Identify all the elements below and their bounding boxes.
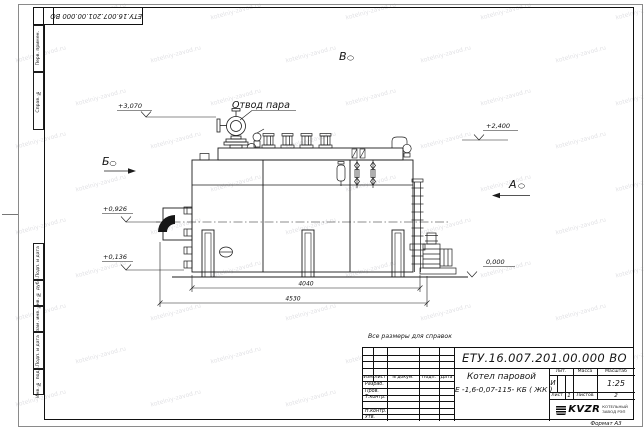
- sheet-label: Лист: [549, 392, 565, 399]
- dimension-inner: 4040: [298, 281, 313, 288]
- scale-value: 1:25: [597, 375, 635, 393]
- drawing-sheet: kotelniy-zavod.rukotelniy-zavod.rukoteln…: [0, 0, 644, 430]
- product-name: Котел паровой: [456, 371, 547, 384]
- elevation-mark-0926: +0,926: [103, 205, 127, 213]
- kvzr-logo: KVZR: [568, 404, 600, 415]
- boiler-body: [156, 109, 468, 278]
- format-label: Формат А3: [578, 421, 634, 427]
- view-label-v: В: [339, 50, 347, 63]
- feed-pump: [420, 233, 456, 274]
- header-fittings: [352, 149, 365, 158]
- col-podp: Подп.: [419, 375, 439, 382]
- row-nkontr: Н.контр.: [363, 408, 389, 415]
- product-model: Е -1,6-0,07-115- КБ ( ЖК ): [455, 384, 548, 395]
- margin-field-label: Перв. примен.: [36, 31, 41, 66]
- margin-field-perv-primen: Перв. примен.: [33, 25, 44, 72]
- sheets-label: Листов: [573, 392, 597, 399]
- margin-field-podp-data-1: Подп. и дата: [33, 243, 44, 280]
- col-izm: Изм: [363, 375, 373, 382]
- sheet-value: 1: [565, 392, 573, 399]
- vent-pipe: [392, 137, 411, 157]
- elevation-mark-3070: +3,070: [118, 102, 142, 110]
- corner-doc-number: ЕТУ.16.007.201.00.000 ВО: [54, 8, 142, 24]
- company-name: КОТЕЛЬНЫЙ ЗАВОД РЭП: [602, 405, 628, 414]
- margin-field-label: Взам. инв. №: [36, 303, 41, 334]
- view-label-a: А: [508, 178, 517, 191]
- kvzr-spring-icon: [556, 405, 566, 415]
- massa-label: Масса: [573, 368, 597, 375]
- manhole-covers: [262, 134, 332, 149]
- reference-note: Все размеры для справок: [350, 333, 470, 340]
- water-level-gauges: [337, 160, 376, 188]
- steam-valve: [217, 109, 248, 149]
- lit-value: И: [549, 375, 557, 393]
- elevation-mark-2400: +2,400: [486, 122, 510, 130]
- margin-field-sprav-no: Справ. №: [33, 72, 44, 130]
- damper-sector: [158, 215, 175, 232]
- boiler-shell: [192, 160, 413, 272]
- view-arrow-b: [128, 168, 136, 174]
- row-prov: Пров.: [363, 388, 389, 395]
- margin-field-label: Подп. и дата: [36, 246, 41, 277]
- row-razrab: Разраб.: [363, 381, 389, 388]
- elevation-symbols: [102, 111, 518, 278]
- view-arrow-a: [492, 193, 500, 199]
- steam-outlet-label: Отвод пара: [232, 100, 290, 111]
- title-block: Изм Лист N докум. Подп. Дата Разраб. Про…: [362, 347, 634, 420]
- view-label-b: Б: [102, 155, 110, 168]
- company-name-line2: ЗАВОД РЭП: [602, 410, 628, 414]
- leader-line: [240, 111, 252, 121]
- col-list: Лист: [373, 375, 387, 382]
- sheets-value: 2: [597, 392, 635, 399]
- corner-stamp-divider: [43, 8, 44, 24]
- margin-field-inv-podl: Инв. № подл.: [33, 369, 44, 395]
- row-utv: Утв.: [363, 414, 389, 421]
- row-empty: [363, 401, 389, 408]
- elevation-mark-zero: 0,000: [486, 258, 505, 266]
- margin-field-podp-data-2: Подп. и дата: [33, 332, 44, 369]
- margin-field-label: Справ. №: [36, 90, 41, 113]
- col-data: Дата: [439, 375, 454, 382]
- margin-field-label: Инв. № подл.: [36, 366, 41, 398]
- margin-field-vzam-inv: Взам. инв. №: [33, 306, 44, 332]
- elevation-mark-0136: +0,136: [103, 253, 127, 261]
- corner-stamp: ЕТУ.16.007.201.00.000 ВО: [33, 7, 143, 25]
- handhole: [220, 247, 233, 257]
- doc-number: ЕТУ.16.007.201.00.000 ВО: [456, 350, 633, 366]
- row-tkontr: Т.контр.: [363, 395, 389, 402]
- col-ndokum: N докум.: [387, 375, 419, 382]
- margin-field-label: Подп. и дата: [36, 335, 41, 366]
- safety-valve: [247, 129, 264, 148]
- company-cell: KVZR КОТЕЛЬНЫЙ ЗАВОД РЭП: [549, 399, 635, 420]
- view-markers: Б А В: [102, 50, 530, 198]
- steam-header: [218, 148, 403, 160]
- dimension-overall: 4530: [285, 296, 300, 303]
